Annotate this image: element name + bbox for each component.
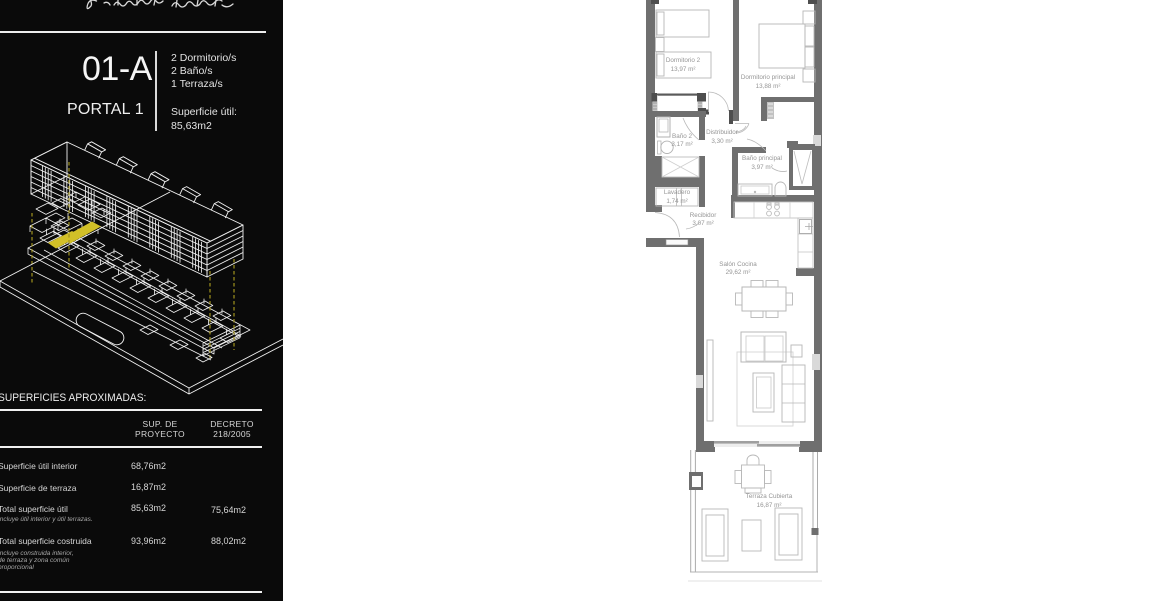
svg-text:Distribuidor: Distribuidor — [706, 129, 738, 136]
svg-text:3,30 m²: 3,30 m² — [711, 138, 732, 145]
svg-text:16,87 m²: 16,87 m² — [757, 502, 782, 509]
svg-text:13,97 m²: 13,97 m² — [671, 66, 696, 73]
svg-text:Salón Cocina: Salón Cocina — [719, 261, 757, 268]
svg-text:13,88 m²: 13,88 m² — [756, 83, 781, 90]
svg-text:29,62 m²: 29,62 m² — [726, 269, 751, 276]
svg-text:Recibidor: Recibidor — [690, 212, 717, 219]
svg-text:1,74 m²: 1,74 m² — [666, 198, 687, 205]
svg-text:3,07 m²: 3,07 m² — [692, 220, 713, 227]
svg-text:3,97 m²: 3,97 m² — [751, 164, 772, 171]
svg-text:Terraza Cubierta: Terraza Cubierta — [746, 493, 793, 500]
svg-text:Dormitorio principal: Dormitorio principal — [741, 74, 795, 81]
svg-text:3,17 m²: 3,17 m² — [671, 141, 692, 148]
svg-text:Lavadero: Lavadero — [664, 189, 691, 196]
svg-text:Dormitorio 2: Dormitorio 2 — [666, 57, 701, 64]
svg-text:Baño 2: Baño 2 — [672, 133, 692, 140]
svg-text:Baño principal: Baño principal — [742, 155, 782, 162]
